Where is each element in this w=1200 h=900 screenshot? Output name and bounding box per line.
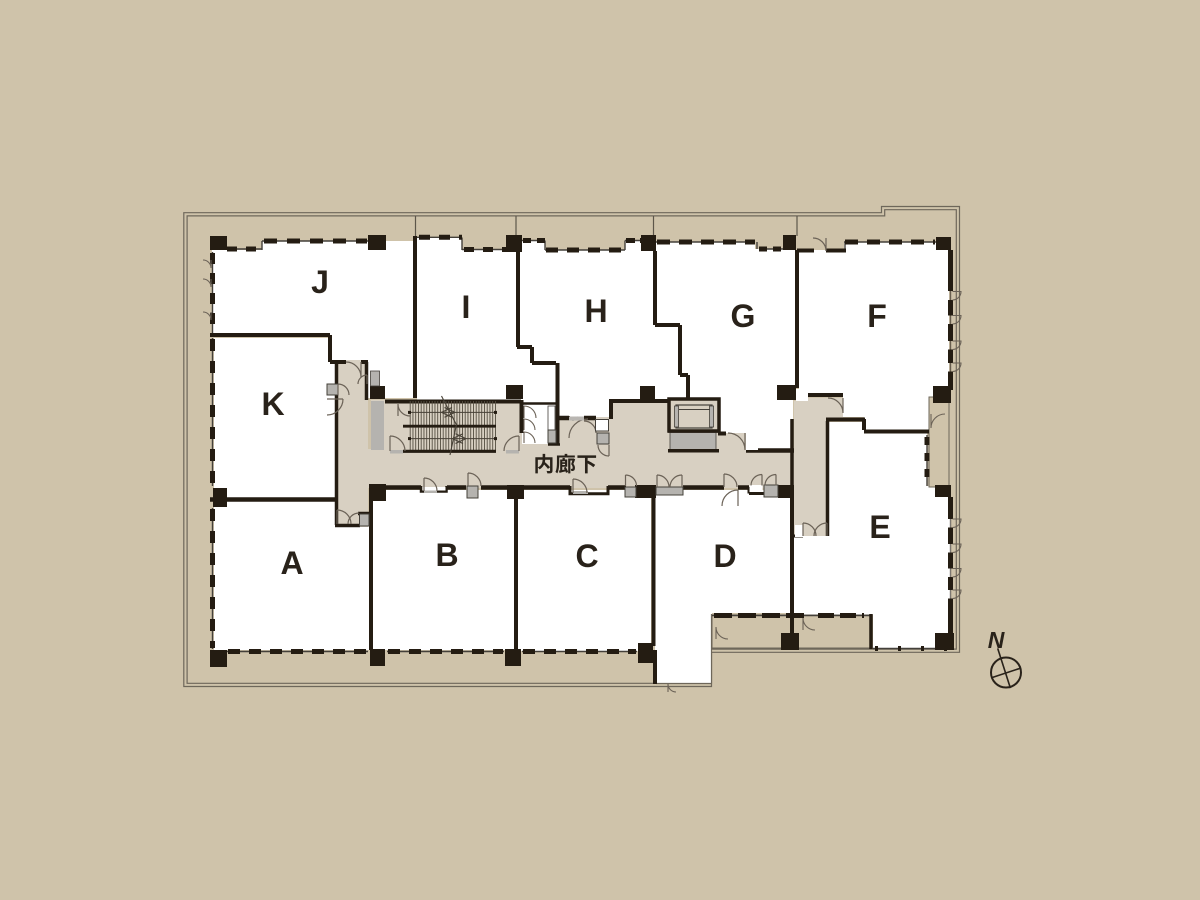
svg-text:N: N	[988, 627, 1005, 653]
svg-text:D: D	[713, 538, 736, 574]
svg-text:J: J	[311, 264, 329, 300]
svg-text:E: E	[869, 509, 890, 545]
svg-text:I: I	[462, 289, 471, 325]
svg-text:H: H	[584, 293, 607, 329]
svg-text:C: C	[575, 538, 598, 574]
svg-text:F: F	[867, 298, 887, 334]
svg-text:A: A	[280, 545, 303, 581]
svg-text:G: G	[731, 298, 756, 334]
svg-text:K: K	[261, 386, 284, 422]
svg-text:B: B	[435, 537, 458, 573]
